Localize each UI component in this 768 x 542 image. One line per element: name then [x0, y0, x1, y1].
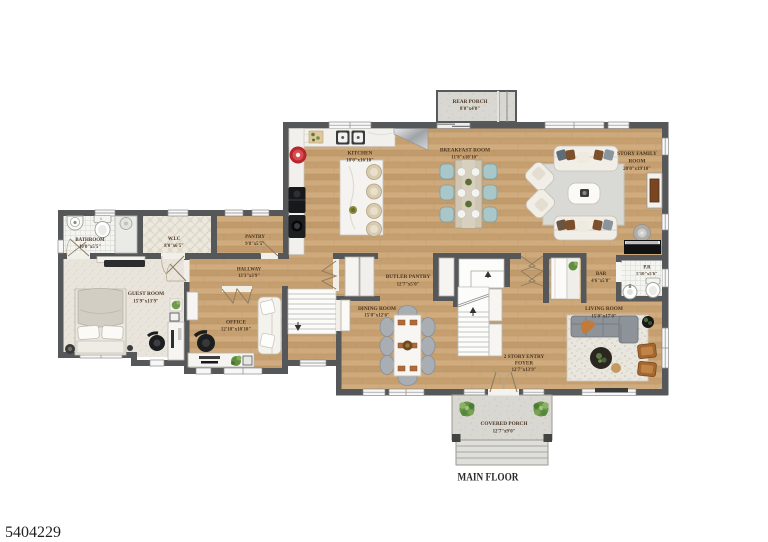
svg-text:KITCHEN: KITCHEN: [347, 151, 372, 157]
svg-text:ROOM: ROOM: [628, 159, 645, 165]
svg-text:20'0"x19'10": 20'0"x19'10": [623, 167, 651, 172]
svg-text:5'10"x5'6": 5'10"x5'6": [636, 271, 658, 276]
svg-text:4'6"x5'8": 4'6"x5'8": [591, 279, 611, 284]
svg-text:13'3"x3'9": 13'3"x3'9": [238, 274, 260, 279]
svg-text:COVERED PORCH: COVERED PORCH: [481, 421, 529, 427]
svg-text:15'0"x17'0": 15'0"x17'0": [591, 315, 617, 320]
svg-text:HALLWAY: HALLWAY: [237, 268, 262, 273]
svg-text:8'0"x6'5": 8'0"x6'5": [164, 244, 184, 249]
svg-text:STORY FAMILY: STORY FAMILY: [617, 151, 657, 157]
svg-text:18'0"x16'10": 18'0"x16'10": [346, 159, 374, 164]
svg-text:11'8"x10'10": 11'8"x10'10": [451, 156, 479, 161]
svg-text:10'0"x5'5": 10'0"x5'5": [79, 245, 101, 250]
svg-text:GUEST ROOM: GUEST ROOM: [128, 291, 164, 297]
svg-text:BREAKFAST ROOM: BREAKFAST ROOM: [440, 148, 490, 154]
svg-text:12'10"x10'10": 12'10"x10'10": [221, 328, 251, 333]
svg-text:8'0"x4'0": 8'0"x4'0": [460, 107, 480, 112]
svg-text:OFFICE: OFFICE: [226, 320, 246, 326]
svg-text:2 STORY ENTRY: 2 STORY ENTRY: [504, 354, 545, 360]
svg-text:12'7"x5'0": 12'7"x5'0": [397, 283, 420, 288]
svg-text:P.R: P.R: [643, 266, 651, 271]
svg-text:15'0"x12'6": 15'0"x12'6": [364, 314, 390, 319]
svg-text:12'7"x9'0": 12'7"x9'0": [493, 430, 516, 435]
svg-text:FOYER: FOYER: [515, 361, 533, 367]
svg-text:LIVING ROOM: LIVING ROOM: [585, 306, 623, 312]
svg-text:DINING ROOM: DINING ROOM: [358, 306, 396, 312]
svg-text:5404229: 5404229: [5, 524, 61, 541]
svg-text:MAIN FLOOR: MAIN FLOOR: [458, 470, 519, 484]
svg-text:9'8"x5'5": 9'8"x5'5": [245, 242, 265, 247]
svg-text:REAR PORCH: REAR PORCH: [453, 99, 488, 105]
svg-text:PANTRY: PANTRY: [245, 235, 265, 240]
svg-text:BUTLER PANTRY: BUTLER PANTRY: [386, 274, 431, 280]
svg-text:BAR: BAR: [596, 272, 607, 277]
svg-text:W.I.C: W.I.C: [168, 237, 181, 242]
svg-text:BATHROOM: BATHROOM: [75, 238, 105, 243]
svg-text:15'9"x13'9": 15'9"x13'9": [133, 300, 159, 305]
svg-text:12'7"x13'9": 12'7"x13'9": [512, 368, 537, 373]
